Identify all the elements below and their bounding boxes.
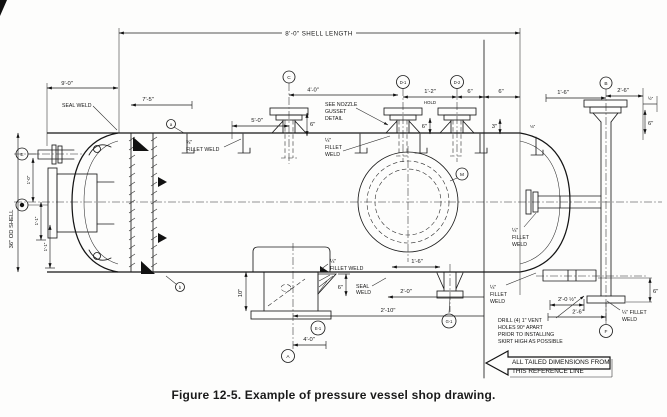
dim-d-spacing-note: HOLD [424,100,436,105]
girth-seam-welds [129,133,167,274]
dim-b-left: 1'-6" [557,90,569,96]
dim-clip-span: 5'-0" [251,118,263,124]
dim-b-half: ½" [648,96,654,101]
note-fillet14-br-size: ¼" [490,285,496,291]
manway-cover [57,174,97,232]
note-fillet34: FILLET WELD [186,147,220,153]
balloon-b: B [604,81,607,87]
dim-od: 36" OD SHELL [9,209,15,249]
dim-nozzle-c: 4'-0" [307,88,319,94]
balloon-d2: D-2 [454,80,461,85]
figure-caption: Figure 12-5. Example of pressure vessel … [0,388,667,402]
dim-skirt-offset: 2'-10" [381,308,396,314]
right-standpipe [526,89,648,322]
dim-br-a: 2'-0 ½" [558,296,576,303]
balloon-d1: D-1 [400,80,407,85]
balloon-f: F [605,329,608,335]
note-gusset-1: SEE NOZZLE [325,102,358,108]
balloon-flag-b: b [179,285,182,290]
note-drill-1: DRILL (4) 1" VENT [498,318,543,324]
banner-line-1: ALL TAILED DIMENSIONS FROM [512,359,610,366]
dim-d-spacing: 1'-2" [424,89,436,95]
manway-flange [48,168,57,238]
dimension-lines: 8'-0" SHELL LENGTH 9'-0" 7'-5" 5'-0" 4'-… [9,31,658,350]
note-fillet14-head-size: ¼" [512,228,518,234]
note-fillet14-br-2: FILLET [490,292,508,298]
dim-gusset-height: 6" [338,285,343,291]
dim-br-height: 6" [653,289,658,295]
support-skirt [251,243,336,350]
dim-d-height: 6" [422,124,427,130]
note-fillet14-top-2: FILLET [325,145,343,151]
dim-ref-a: 6" [467,89,472,95]
note-gusset-3: DETAIL [325,116,343,122]
dim-head-c: 1'-1" [43,242,48,251]
note-fillet14-top-3: WELD [325,152,340,158]
dim-left-oal: 9'-0" [61,81,73,87]
note-drill-2: HOLES 90° APART [498,325,544,331]
shell-manway-circle [358,146,458,262]
dim-skirt-height: 10" [238,289,244,298]
note-seal-skirt-2: WELD [356,290,371,296]
note-fillet14-top-size: ¼" [325,138,331,144]
right-head [520,133,570,272]
scanned-drawing-page: 8'-0" SHELL LENGTH 9'-0" 7'-5" 5'-0" 4'-… [0,0,667,417]
balloon-c: C [287,75,291,81]
dim-skirt-nozzle: 4'-0" [303,337,315,343]
reference-banner: ALL TAILED DIMENSIONS FROM THIS REFERENC… [486,351,612,377]
note-drill-4: SKIRT HIGH AS POSSIBLE [498,339,563,345]
dim-ref-c: 3" [492,124,497,130]
dim-head-b: 1'-1" [34,216,39,225]
note-fillet14-skirt-2: FILLET WELD [330,266,364,272]
pressure-vessel-drawing: 8'-0" SHELL LENGTH 9'-0" 7'-5" 5'-0" 4'-… [0,0,667,385]
balloon-g1: G-1 [446,319,454,324]
weld-notes: SEAL WELD ¾" FILLET WELD SEE NOZZLE GUSS… [62,102,647,345]
dim-circle-offset: 1'-6" [411,259,423,265]
balloon-e: E [20,152,23,158]
dim-shell-length: 8'-0" SHELL LENGTH [285,31,352,38]
dim-b-right: 2'-6" [617,88,629,94]
balloon-a: A [286,354,290,360]
note-fillet14-head-2: FILLET [512,235,530,241]
note-drill-3: PRIOR TO INSTALLING [498,332,554,338]
balloon-e1: E-1 [315,326,322,331]
nozzle-d1 [384,88,422,162]
balloon-m: M [460,172,464,178]
scan-artifact [0,0,7,16]
dim-ref-b: 6" [498,89,503,95]
note-fillet14-skirt-size: ¼" [330,259,336,265]
note-gusset-2: GUSSET [325,109,347,115]
balloon-flag-a: a [170,122,173,127]
nozzle-d2 [438,88,476,162]
dim-seam-offset: 7'-5" [142,97,154,103]
note-fillet34-size: ¾" [186,140,192,146]
banner-line-2: THIS REFERENCE LINE [512,368,584,375]
note-fillet14-br-3: WELD [490,299,505,305]
dim-br-b: 2'-6" [572,310,584,316]
note-fillet14-far-1: ¼" FILLET [622,310,647,316]
note-fillet14-far-2: WELD [622,317,637,323]
dim-seal-offset: 2'-0" [400,289,412,295]
note-fillet14-head-3: WELD [512,242,527,248]
left-head-fittings [14,145,114,238]
left-head [72,133,118,272]
bottom-nozzle [437,264,463,312]
dim-head-a: 1'-0" [26,175,31,184]
dim-c-height: 6" [310,122,315,128]
dim-b-height: 6" [648,121,653,127]
dim-clip-weld: ⅛" [530,124,536,129]
note-seal-weld: SEAL WELD [62,103,92,109]
